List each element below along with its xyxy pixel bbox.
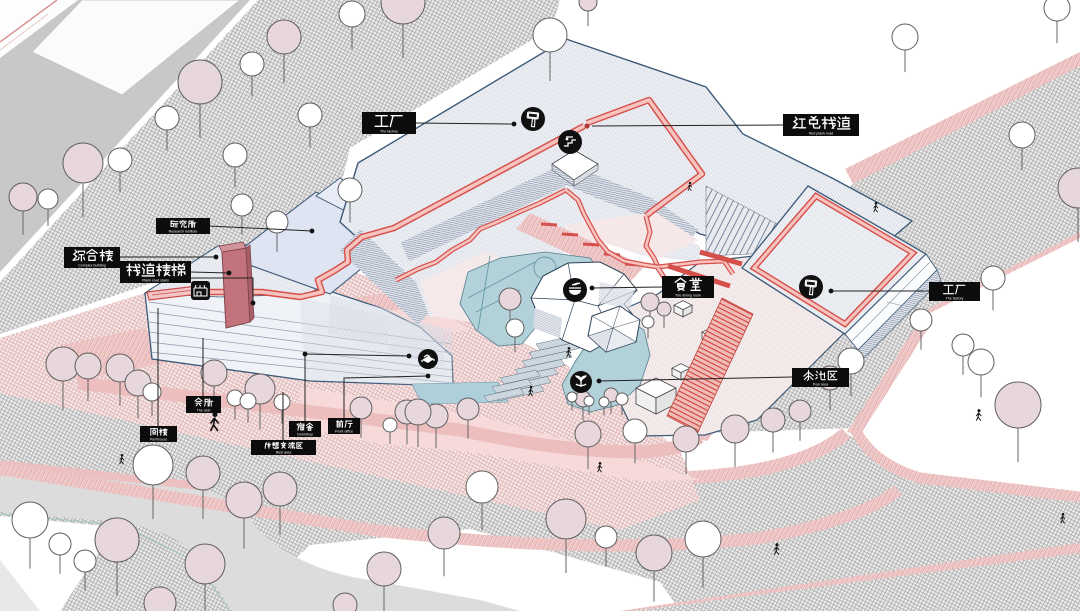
svg-text:Red plank road: Red plank road	[809, 132, 833, 136]
svg-text:Complex building: Complex building	[78, 264, 106, 268]
svg-text:Front office: Front office	[335, 430, 353, 434]
svg-text:The club: The club	[197, 409, 211, 413]
svg-text:Plank road stairs: Plank road stairs	[142, 279, 169, 283]
svg-text:Pool area: Pool area	[813, 383, 828, 387]
svg-text:Research institute: Research institute	[169, 230, 198, 234]
svg-text:Rest area: Rest area	[276, 451, 292, 455]
svg-text:The factory: The factory	[380, 130, 398, 134]
svg-text:Penthouse: Penthouse	[150, 438, 167, 442]
svg-text:Dormitory: Dormitory	[297, 433, 313, 437]
svg-text:The factory: The factory	[946, 297, 964, 301]
svg-text:The dining room: The dining room	[675, 294, 701, 298]
